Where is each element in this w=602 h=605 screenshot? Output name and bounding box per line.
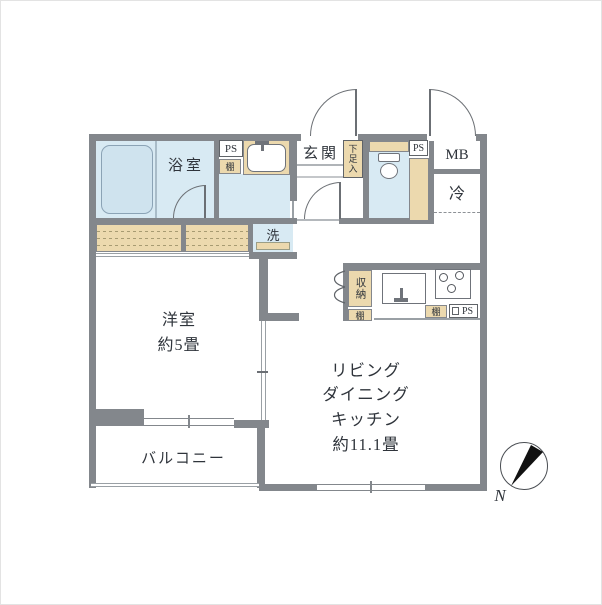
kitchen-faucet-base — [394, 298, 408, 302]
bath-shelf-box: 棚 — [219, 159, 241, 174]
wall — [480, 134, 487, 491]
ldk-label-line4: 約11.1畳 — [322, 433, 410, 458]
toilet-bowl — [380, 163, 398, 179]
bathroom-divider-line — [155, 141, 157, 218]
kitchen-counter-front — [374, 318, 480, 320]
wall — [259, 252, 268, 321]
refrigerator-label-text: 冷 — [449, 180, 465, 204]
compass-north-text: N — [494, 486, 505, 506]
pipe-space-box: PS — [219, 140, 243, 157]
balcony-label: バルコニー — [116, 447, 251, 467]
laundry-label-text: 洗 — [266, 225, 279, 244]
meter-box-door-arc — [429, 89, 476, 136]
sliding-door-tick — [257, 371, 268, 373]
ldk-label-line1: リビング — [322, 359, 410, 384]
wall — [234, 420, 269, 428]
bifold-door-icon — [328, 270, 346, 305]
wall — [89, 134, 96, 488]
wall — [268, 313, 299, 321]
hall-door-arc — [304, 182, 341, 219]
washbasin-sink — [247, 144, 286, 172]
pipe-space-label: PS — [225, 143, 237, 155]
closet-left — [96, 224, 182, 252]
window-mullion — [370, 481, 372, 493]
bathroom-label-text: 浴室 — [168, 154, 204, 175]
entrance-step-line — [297, 164, 345, 166]
entrance-door-arc — [310, 89, 357, 136]
refrigerator-dashed-line — [434, 212, 480, 213]
kitchen-shelf-left-box: 棚 — [348, 309, 372, 321]
meter-box-door-leaf — [429, 89, 431, 136]
wall — [249, 252, 297, 259]
meter-box-label-text: MB — [445, 147, 468, 164]
hall-door-leaf — [339, 182, 341, 219]
balcony-label-text: バルコニー — [141, 447, 226, 468]
western-room-label: 洋室 約5畳 — [119, 306, 239, 362]
wall — [290, 138, 297, 201]
western-room-size: 約5畳 — [157, 334, 200, 359]
wall — [182, 224, 185, 252]
kitchen-shelf-right-box: 棚 — [425, 305, 447, 318]
bathroom-label: 浴室 — [159, 154, 213, 174]
toilet-side-cabinet — [409, 158, 429, 221]
shoe-cabinet-box: 下足入 — [343, 140, 363, 178]
kitchen-shelf-left-label: 棚 — [355, 309, 364, 322]
ldk-label-line2: ダイニング — [322, 383, 410, 408]
window-mullion — [188, 415, 190, 428]
pipe-space-square — [452, 307, 459, 315]
wall — [425, 484, 487, 491]
kitchen-shelf-right-label: 棚 — [431, 305, 440, 318]
meter-box-label: MB — [434, 141, 480, 169]
bath-shelf-label: 棚 — [225, 160, 234, 173]
wall — [89, 409, 144, 426]
pipe-space-label-2: PS — [413, 143, 424, 154]
pipe-space-box-2: PS — [409, 140, 428, 156]
ldk-label: リビング ダイニング キッチン 約11.1畳 — [294, 361, 438, 455]
washroom-floor — [219, 174, 290, 223]
stove-burner — [455, 271, 464, 280]
compass-needle-icon — [500, 442, 548, 490]
storage-box: 収納 — [348, 270, 372, 307]
shoe-cabinet-label: 下足入 — [347, 144, 360, 174]
stove-burner — [439, 273, 448, 282]
wall — [259, 484, 317, 491]
toilet-shelf — [369, 141, 409, 152]
ldk-label-line3: キッチン — [322, 408, 410, 433]
entrance-label-text: 玄関 — [303, 142, 339, 163]
compass-north-label: N — [488, 486, 512, 506]
bathtub — [101, 145, 153, 214]
closet-right — [185, 224, 249, 252]
washbasin-faucet-stem — [261, 144, 264, 151]
wall — [257, 428, 265, 488]
western-room-name: 洋室 — [157, 309, 200, 334]
laundry-label: 洗 — [253, 224, 293, 244]
entrance-door-leaf — [355, 89, 357, 136]
entrance-label: 玄関 — [298, 143, 344, 161]
pipe-space-label-3: PS — [462, 306, 473, 317]
pipe-space-box-3: PS — [449, 304, 478, 318]
closet-sliding-doors — [96, 253, 251, 257]
balcony-edge — [91, 483, 259, 487]
stove-burner — [447, 284, 456, 293]
toilet-tank — [378, 153, 400, 162]
refrigerator-label: 冷 — [434, 173, 480, 211]
bathroom-door-leaf — [204, 185, 206, 218]
storage-label: 収納 — [353, 277, 368, 300]
floor-plan: PS 棚 下足入 PS 収納 棚 棚 PS 浴室 玄関 洗 MB 冷 洋室 約5… — [0, 0, 602, 605]
hall-ldk-opening — [297, 219, 339, 221]
